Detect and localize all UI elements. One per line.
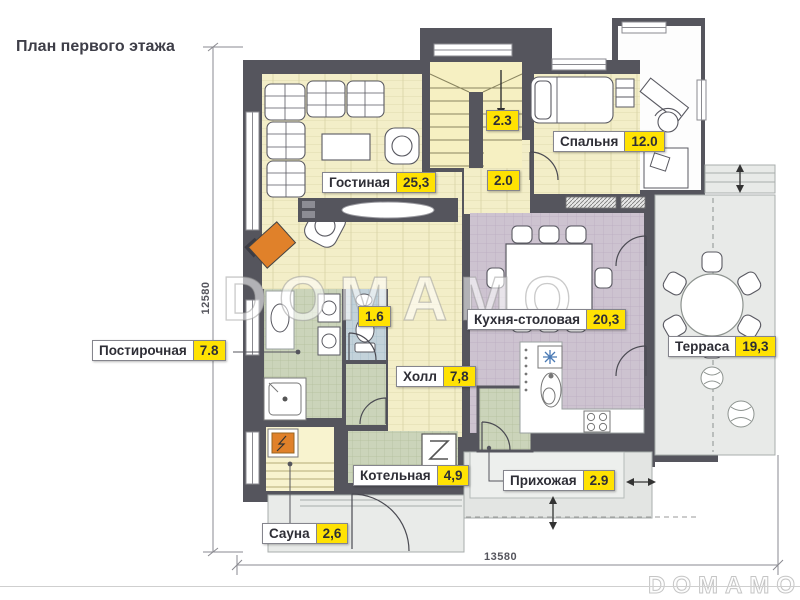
stove-icon — [584, 411, 610, 432]
room-name-kitchen: Кухня-столовая — [467, 309, 587, 330]
sink-icon — [541, 373, 561, 407]
vestibule-floor — [346, 364, 386, 425]
wardrobe-icon — [616, 79, 634, 107]
footer-divider — [0, 586, 800, 587]
room-label-living: Гостиная25,3 — [322, 172, 436, 193]
shower-icon — [264, 378, 306, 420]
room-label-entry: Прихожая2.9 — [503, 470, 615, 491]
room-label-hall: Холл7,8 — [396, 366, 476, 387]
armchair-icon — [385, 128, 419, 164]
room-name-laundry: Постирочная — [92, 340, 194, 361]
room-area-landing: 2.0 — [487, 170, 520, 191]
dimension-width: 13580 — [484, 551, 517, 563]
vent-hatch — [566, 197, 645, 208]
room-area-entry: 2.9 — [584, 470, 616, 491]
washbasin-icon — [266, 291, 294, 349]
room-area-laundry: 7.8 — [194, 340, 226, 361]
coffee-table-icon — [322, 134, 370, 160]
room-area-boiler: 4,9 — [438, 465, 470, 486]
room-name-entry: Прихожая — [503, 470, 584, 491]
room-name-sauna: Сауна — [262, 523, 317, 544]
room-label-laundry: Постирочная7.8 — [92, 340, 226, 361]
room-label-sauna: Сауна2,6 — [262, 523, 348, 544]
room-name-terrace: Терраса — [668, 336, 736, 357]
floor-plan-page: DOMAMO DOMAMO План первого этажа Гостина… — [0, 0, 800, 600]
room-label-terrace: Терраса19,3 — [668, 336, 776, 357]
room-area-living: 25,3 — [397, 172, 436, 193]
room-name-hall: Холл — [396, 366, 444, 387]
room-area-stairs: 2.3 — [486, 110, 519, 131]
room-label-boiler: Котельная4,9 — [353, 465, 469, 486]
room-area-hall: 7,8 — [444, 366, 476, 387]
room-area-wc: 1.6 — [358, 306, 391, 327]
tv-console-icon — [298, 198, 458, 222]
room-area-kitchen: 20,3 — [587, 309, 626, 330]
floor-plan-drawing — [0, 0, 800, 600]
side-table-icon — [644, 148, 688, 188]
dimension-height: 12580 — [200, 276, 212, 320]
room-area-terrace: 19,3 — [736, 336, 775, 357]
boiler-icon — [422, 434, 456, 466]
room-label-kitchen: Кухня-столовая20,3 — [467, 309, 626, 330]
sauna-stove-icon — [268, 429, 298, 457]
room-label-landing: 2.0 — [487, 170, 520, 191]
round-table-icon — [681, 274, 743, 336]
bed-icon — [531, 77, 613, 123]
room-label-stairs: 2.3 — [486, 110, 519, 131]
room-name-boiler: Котельная — [353, 465, 438, 486]
dining-table-icon — [506, 244, 592, 312]
room-name-living: Гостиная — [322, 172, 397, 193]
fridge-icon — [538, 346, 562, 368]
page-title: План первого этажа — [16, 38, 175, 56]
room-label-wc: 1.6 — [358, 306, 391, 327]
room-name-bedroom: Спальня — [553, 131, 625, 152]
room-label-bedroom: Спальня12.0 — [553, 131, 665, 152]
room-area-bedroom: 12.0 — [625, 131, 664, 152]
room-area-sauna: 2,6 — [317, 523, 349, 544]
